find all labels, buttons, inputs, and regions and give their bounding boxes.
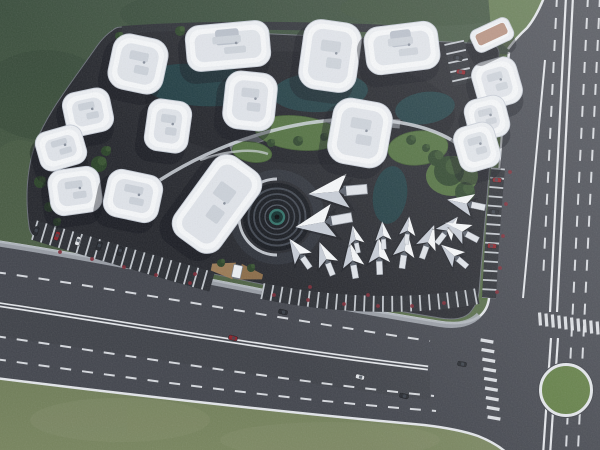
aerial-render [0,0,600,450]
grain-overlay [0,0,600,450]
masterplan-scene [0,0,600,450]
